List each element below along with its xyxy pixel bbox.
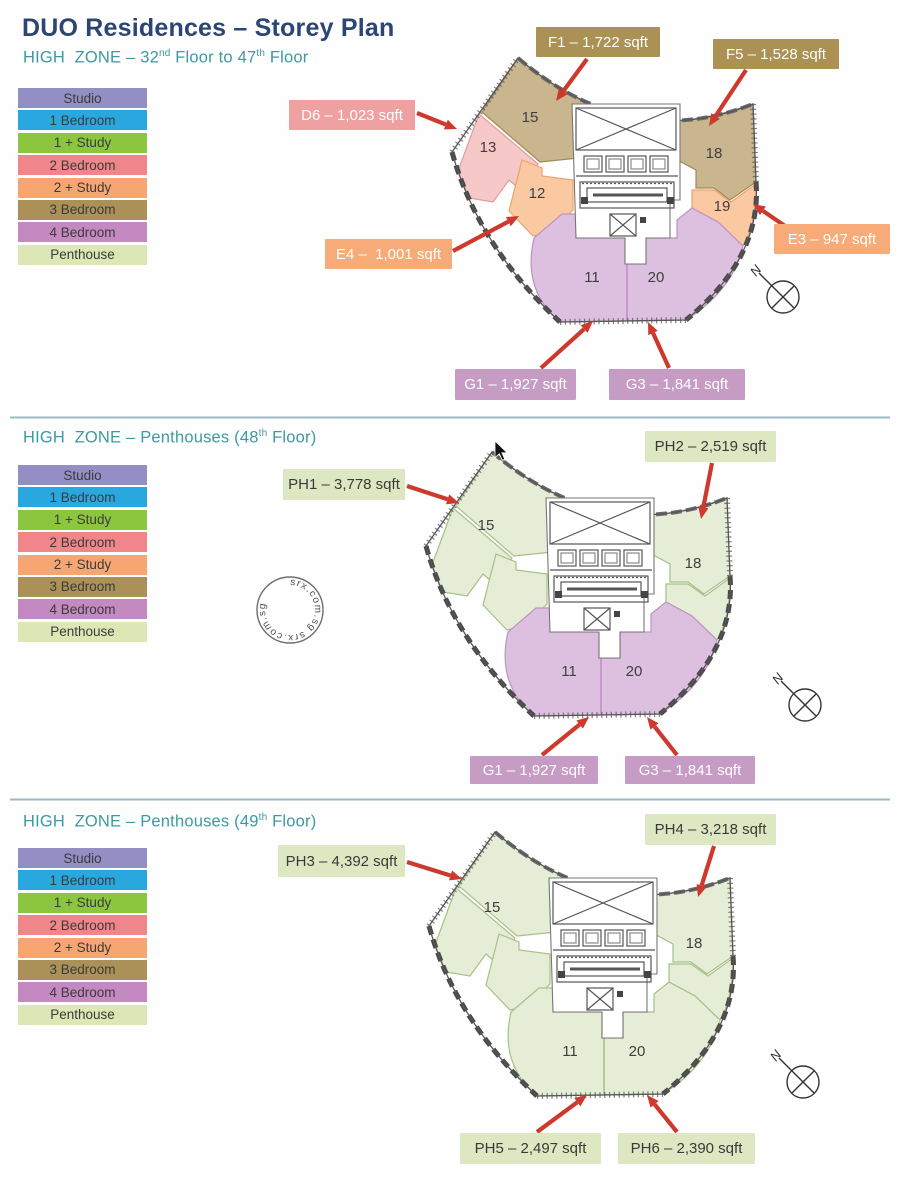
arrow-shaft [541, 329, 584, 368]
unit-number-13: 13 [480, 139, 497, 156]
floor-plan-3: 15181120 [429, 832, 733, 1096]
callout-arrow [407, 486, 459, 504]
service-box [641, 591, 648, 598]
unit-number-20: 20 [648, 269, 665, 286]
callout-arrow [647, 1095, 677, 1132]
callout-arrow [541, 321, 593, 368]
compass-icon: N [767, 1047, 819, 1098]
srx-watermark: srx.com.sg srx.com.sg [257, 577, 323, 643]
compass-icon: N [769, 670, 821, 721]
unit-number-18: 18 [706, 145, 723, 162]
callout-arrow [407, 862, 462, 880]
callout-arrow [542, 717, 589, 755]
unit-number-18: 18 [685, 555, 702, 572]
service-box [581, 197, 588, 204]
unit-number-20: 20 [626, 663, 643, 680]
service-box [667, 197, 674, 204]
arrow-shaft [763, 211, 801, 237]
arrow-shaft [654, 726, 677, 755]
callout-arrow [417, 113, 457, 129]
service-box [558, 971, 565, 978]
service-box [617, 991, 623, 997]
unit-number-19: 19 [714, 198, 731, 215]
arrow-shaft [702, 846, 714, 886]
floor-plan-1: 15131218191120 [452, 58, 756, 322]
arrow-head [446, 494, 459, 504]
arrow-shaft [417, 113, 446, 125]
unit-number-20: 20 [629, 1043, 646, 1060]
storey-plan-canvas: 15131218191120N15181120N15181120Nsrx.com… [0, 0, 900, 1185]
callout-arrow [537, 1095, 587, 1132]
unit-number-15: 15 [478, 517, 495, 534]
service-box [614, 611, 620, 617]
callout-arrow [753, 204, 801, 237]
storey-plan-page: 15131218191120N15181120N15181120Nsrx.com… [0, 0, 900, 1185]
plan-region-18 [645, 878, 733, 974]
arrow-shaft [537, 1102, 577, 1132]
unit-number-18: 18 [686, 935, 703, 952]
unit-number-12: 12 [529, 185, 546, 202]
unit-number-11: 11 [561, 663, 577, 680]
arrow-shaft [407, 862, 451, 875]
callout-arrow [648, 322, 669, 368]
service-box [644, 971, 651, 978]
floor-plan-2: 15181120 [426, 452, 730, 716]
arrow-shaft [453, 222, 508, 251]
plan-region-18 [642, 498, 730, 594]
arrow-head [444, 120, 457, 130]
unit-number-11: 11 [562, 1043, 578, 1060]
callout-arrow [647, 717, 677, 755]
unit-number-15: 15 [484, 899, 501, 916]
unit-number-11: 11 [584, 269, 600, 286]
callout-arrow [453, 216, 519, 251]
arrow-head [449, 870, 462, 880]
arrow-shaft [563, 59, 587, 91]
unit-number-15: 15 [522, 109, 539, 126]
arrow-shaft [407, 486, 448, 499]
compass-icon: N [747, 262, 799, 313]
arrow-shaft [653, 333, 669, 368]
service-box [640, 217, 646, 223]
arrow-shaft [703, 463, 712, 507]
arrow-shaft [655, 1104, 677, 1132]
service-box [555, 591, 562, 598]
arrow-shaft [542, 725, 580, 755]
